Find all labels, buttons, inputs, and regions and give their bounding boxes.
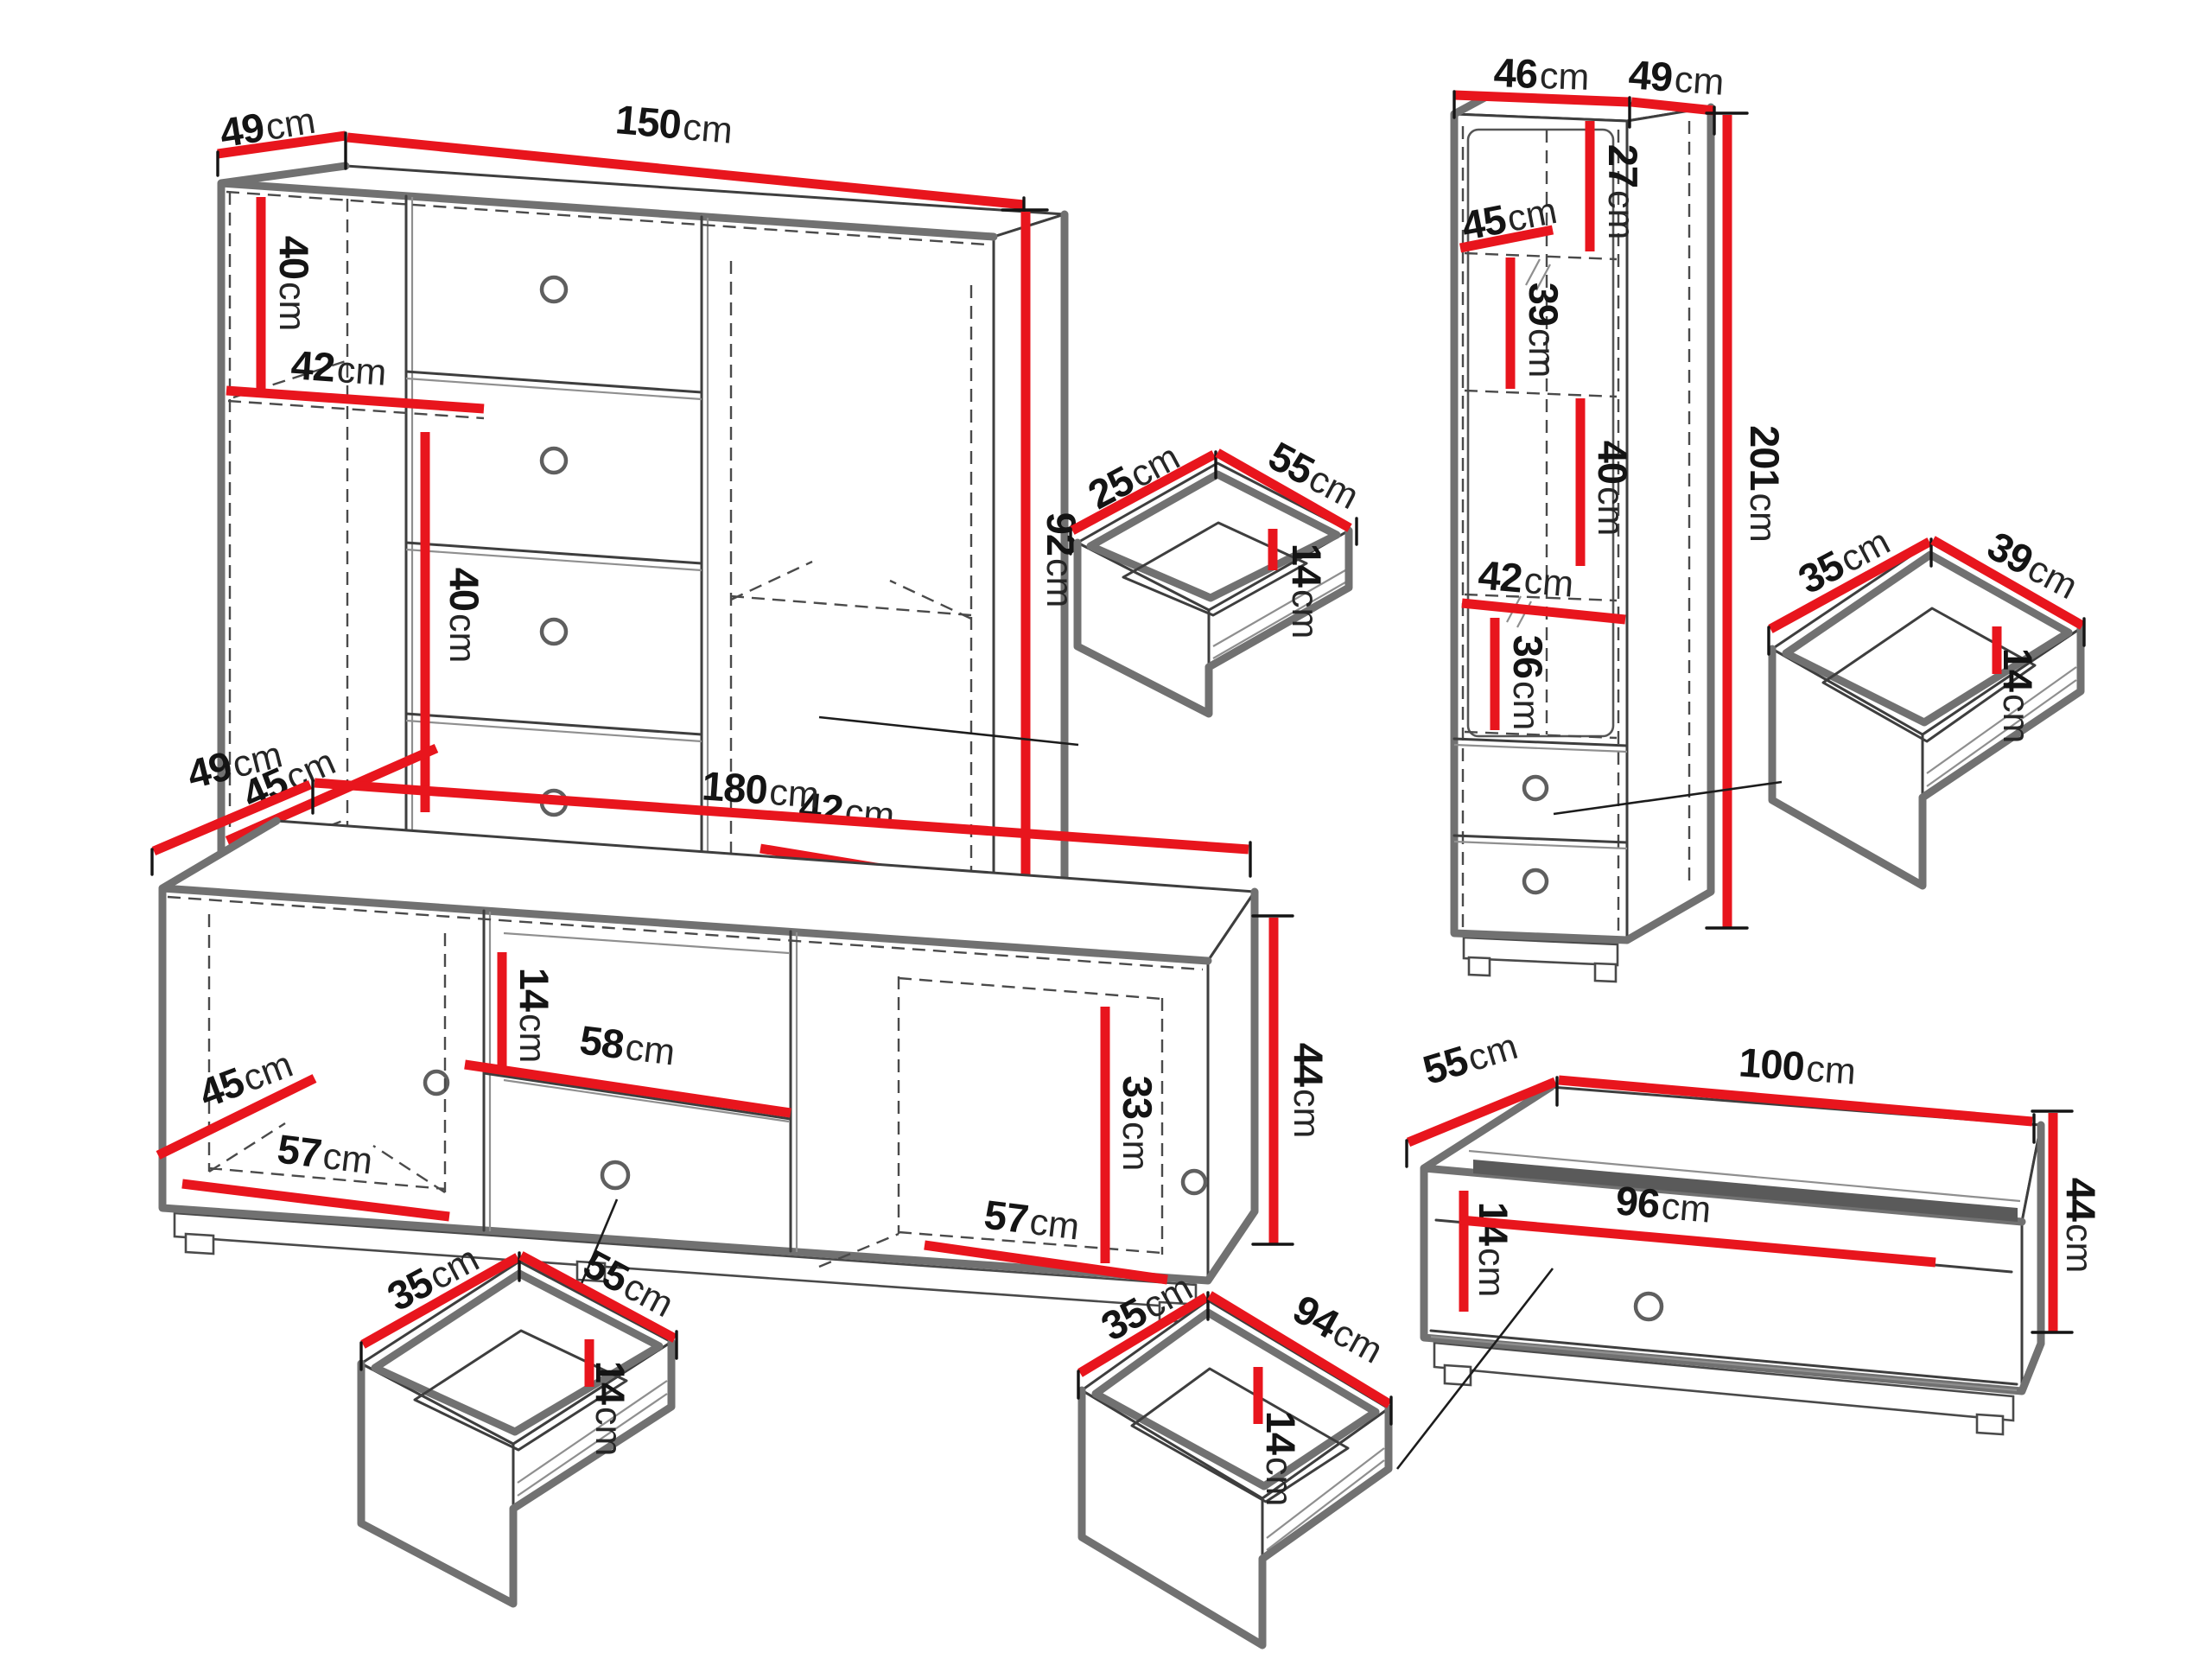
drawer-mid-unit: 25cm 55cm 14cm — [1071, 432, 1367, 714]
foot — [1595, 963, 1616, 982]
label-14cm: 14cm — [1471, 1202, 1516, 1298]
drawer-knob — [602, 1162, 628, 1188]
label-27cm: 27cm — [1600, 144, 1646, 240]
label-44cm: 44cm — [2058, 1178, 2104, 1274]
label-36cm: 36cm — [1505, 635, 1551, 731]
drawer-knob — [1524, 870, 1547, 893]
dim-tv-height: 44cm — [1253, 916, 1332, 1244]
label-33cm: 33cm — [1115, 1076, 1160, 1172]
drawer-right-unit: 35cm 39cm 14cm — [1769, 517, 2086, 886]
tall-cabinet-unit: 46cm 49cm 201cm 27cm 45cm 39cm 40cm — [1454, 49, 1788, 982]
label-100cm: 100cm — [1738, 1039, 1858, 1092]
diagram-canvas: 49cm 150cm 92cm 40cm 42cm 40cm 45cm — [0, 0, 2212, 1659]
door-knob — [1183, 1171, 1205, 1193]
drawer-knob — [1636, 1294, 1662, 1319]
furniture-dimension-diagram: 49cm 150cm 92cm 40cm 42cm 40cm 45cm — [0, 0, 2212, 1659]
foot — [1469, 957, 1490, 976]
dim-sideboard-depth: 49cm — [217, 96, 346, 175]
drawer-knob — [542, 277, 566, 302]
label-14cm: 14cm — [588, 1361, 633, 1457]
drawer-knob — [542, 448, 566, 473]
foot — [186, 1234, 213, 1254]
label-44cm: 44cm — [1286, 1043, 1332, 1139]
drawer-knob — [542, 620, 566, 644]
label-14cm: 14cm — [512, 968, 557, 1064]
label-40cm: 40cm — [1590, 441, 1636, 537]
bench-unit: 55cm 100cm 44cm 14cm 96cm — [1407, 1021, 2104, 1434]
label-150cm: 150cm — [613, 96, 734, 152]
foot — [1977, 1414, 2003, 1434]
drawer-left-unit: 35cm 55cm 14cm — [361, 1234, 682, 1604]
label-14cm: 14cm — [1284, 543, 1330, 639]
label-40cm: 40cm — [271, 236, 317, 332]
label-14cm: 14cm — [1995, 648, 2041, 744]
label-14cm: 14cm — [1258, 1411, 1304, 1507]
foot — [1445, 1365, 1471, 1385]
label-55cm: 55cm — [1418, 1021, 1522, 1093]
label-40cm: 40cm — [442, 568, 487, 664]
label-201cm: 201cm — [1742, 425, 1788, 543]
label-39cm: 39cm — [1521, 283, 1567, 378]
label-46cm: 46cm — [1493, 49, 1590, 99]
dim-bench-niche-height: 14cm — [1464, 1191, 1516, 1312]
drawer-knob — [1524, 777, 1547, 799]
drawer-wide-unit: 35cm 94cm 14cm — [1078, 1263, 1391, 1645]
label-49cm: 49cm — [1627, 51, 1726, 104]
